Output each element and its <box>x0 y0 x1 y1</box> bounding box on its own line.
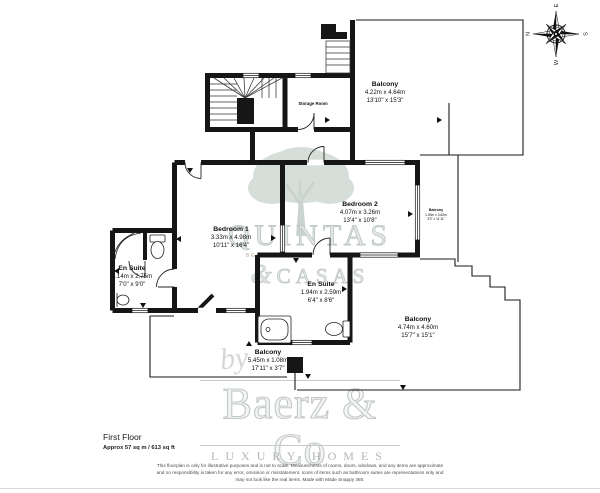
disclaimer-line-1: This floorplan is only for illustrative … <box>0 464 600 469</box>
labels-layer: Balcony 4.22m x 4.64m 13'10" x 15'3" Sto… <box>0 0 600 493</box>
room-label-balcony-top: Balcony 4.22m x 4.64m 13'10" x 15'3" <box>340 81 430 104</box>
disclaimer-line-2: and no responsibility is taken for any e… <box>0 471 600 476</box>
floorplan-page: QUINTAS BESPOKE PROPERTY SERVICES &CASAS… <box>0 0 600 493</box>
page-bottom-rule <box>0 488 600 489</box>
room-label-bedroom-2: Bedroom 2 4.07m x 3.26m 13'4" x 10'8" <box>315 201 405 224</box>
room-label-balcony-side: Balcony 1.00m x 3.62m 3'3" x 11'11" <box>413 208 459 221</box>
room-label-storage-room: Storage Room <box>287 102 339 107</box>
room-label-en-suite-1: En Suite 2.14m x 2.75m 7'0" x 9'0" <box>87 265 177 288</box>
disclaimer-line-3: may not look like the real items. Made w… <box>0 478 600 483</box>
room-label-en-suite-2: En Suite 1.94m x 2.59m 6'4" x 8'6" <box>276 281 366 304</box>
room-label-balcony-bottom-right: Balcony 4.74m x 4.60m 15'7" x 15'1" <box>373 316 463 339</box>
room-label-balcony-bottom: Balcony 5.45m x 1.08m 17'11" x 3'7" <box>223 349 313 372</box>
floor-area: Approx 57 sq m / 613 sq ft <box>103 445 175 451</box>
room-label-bedroom-1: Bedroom 1 3.33m x 4.98m 10'11" x 16'4" <box>186 226 276 249</box>
floor-title: First Floor <box>103 432 142 442</box>
